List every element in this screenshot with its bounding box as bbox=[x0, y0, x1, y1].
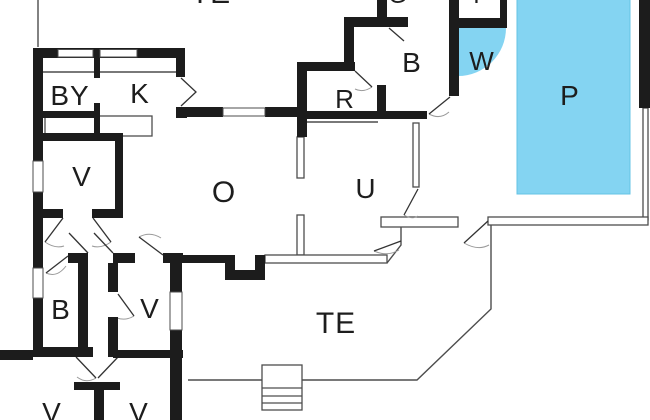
pool bbox=[517, 0, 630, 194]
floor-plan-drawing bbox=[0, 0, 650, 420]
floor-plan: TEBYKVORUGTBWPBVTEVV bbox=[0, 0, 650, 420]
windows-layer bbox=[33, 50, 265, 331]
stairs bbox=[262, 365, 302, 410]
whirlpool bbox=[458, 28, 506, 76]
